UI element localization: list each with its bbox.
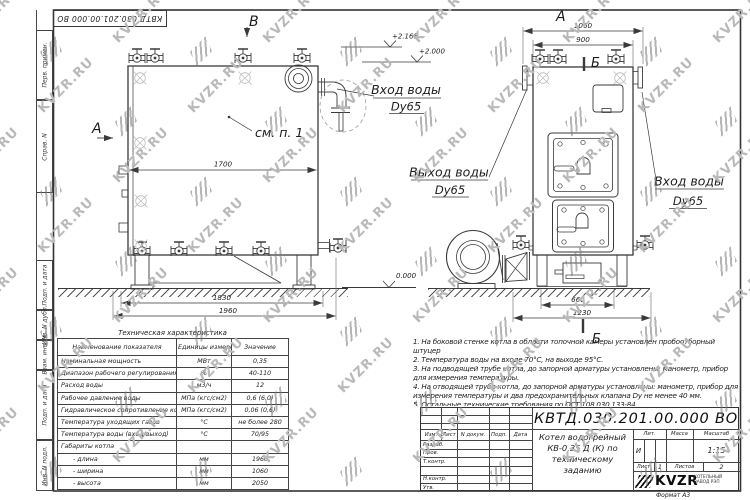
- tech-cell: Диапазон рабочего регулирования: [58, 368, 177, 380]
- product-name-line3: техническому заданию: [532, 454, 633, 476]
- sheet-label: Лист: [633, 462, 654, 471]
- tech-header-cell: Единицы измерения: [177, 339, 232, 356]
- tech-row: Гидравлическое сопротивление котлаМПа (к…: [58, 404, 289, 416]
- tech-cell: мм: [177, 453, 232, 465]
- tech-cell: МПа (кгс/см2): [177, 404, 232, 416]
- view-marks: [97, 27, 584, 333]
- view-title-a: А: [555, 9, 566, 25]
- tech-cell: %: [177, 368, 232, 380]
- front-view-valves: [129, 49, 346, 256]
- note-line: 5. Остальные технические требования по О…: [413, 400, 740, 406]
- dim-1230: 1230: [573, 308, 592, 317]
- outlet-label: Выход воды: [409, 165, 489, 180]
- margin-label: Подп. и дата: [41, 385, 48, 426]
- tech-cell: м3/ч: [177, 380, 232, 392]
- kvzr-logo-icon: [635, 475, 654, 488]
- note-line: 1. На боковой стенке котла в области топ…: [413, 337, 740, 355]
- technical-notes: 1. На боковой стенке котла в области топ…: [413, 337, 740, 406]
- tech-cell: мм: [177, 465, 232, 477]
- dim-1700: 1700: [214, 160, 233, 169]
- margin-box-podp2: Подп. и дата: [36, 370, 53, 440]
- tech-cell: [177, 441, 232, 453]
- dim-660: 660: [571, 295, 585, 304]
- product-name-line2: КВ-0,35 Д (К) по: [532, 443, 633, 454]
- tech-cell: не более 280: [232, 416, 289, 428]
- sig-tkontr: Т.контр.: [421, 457, 459, 466]
- scale-value: 1:15: [693, 439, 740, 462]
- inlet-mid-dn: Dy65: [391, 100, 421, 114]
- tech-cell: [232, 441, 289, 453]
- inlet-right-label: Вход воды: [654, 174, 724, 189]
- margin-box-vzam: Взам. инв. N: [36, 340, 53, 370]
- tech-cell: Рабочее давление воды: [58, 392, 177, 404]
- tech-header-cell: Значение: [232, 339, 289, 356]
- top-stamp-number: КВТД.030.201.00.000 ВО: [57, 14, 162, 23]
- sheets-num: 2: [703, 462, 740, 471]
- see-note-label: см. п. 1: [255, 125, 303, 140]
- tech-cell: МПа (кгс/см2): [177, 392, 232, 404]
- tech-row: - высотамм2050: [58, 477, 289, 489]
- blower-fan: [447, 231, 530, 289]
- drawing-sheet: 1700 1830 1960 1060 900 660 1230 А В А Б…: [0, 0, 750, 500]
- tech-cell: 1060: [232, 465, 289, 477]
- side-view-valves: [513, 50, 653, 250]
- tech-characteristics: Техническая характеристика Наименование …: [57, 329, 288, 490]
- tech-cell: °С: [177, 416, 232, 428]
- sheets-label: Листов: [666, 462, 703, 471]
- outlet-dn: Dy65: [435, 183, 465, 197]
- tech-cell: °С: [177, 429, 232, 441]
- view-letter-a: А: [91, 121, 102, 137]
- tech-table: Наименование показателяЕдиницы измерения…: [57, 338, 289, 490]
- elev-zero: 0.000: [396, 272, 417, 280]
- tech-table-title: Техническая характеристика: [57, 329, 288, 337]
- title-block: КВТД.030.201.00.000 ВО Изм. Лист N докум…: [420, 407, 739, 491]
- mass-label: Масса: [666, 429, 693, 439]
- elev-top: +2.165: [392, 33, 418, 41]
- col-data: Дата: [509, 430, 532, 440]
- inlet-right-dn: Dy65: [673, 194, 703, 208]
- tech-cell: Габариты котла: [58, 441, 177, 453]
- margin-box-inv-podl: Инв. N подл.: [36, 440, 53, 491]
- dim-900: 900: [576, 35, 590, 44]
- margin-box-perv: Перв. примен.: [36, 30, 53, 100]
- sheet-num: 1: [654, 462, 666, 471]
- lit-value: И: [633, 439, 644, 462]
- tech-cell: 2050: [232, 477, 289, 489]
- col-list: Лист: [441, 430, 457, 440]
- tech-cell: 0,35: [232, 356, 289, 368]
- col-podp: Подп.: [489, 430, 509, 440]
- dimensions: [113, 27, 651, 322]
- tech-row: Номинальная мощностьМВт0,35: [58, 356, 289, 368]
- margin-label: Взам. инв. N: [41, 336, 48, 375]
- margin-box-sprav: Справ. N: [36, 100, 53, 193]
- tech-row: - длинамм1960: [58, 453, 289, 465]
- col-ndokum: N докум.: [457, 430, 489, 440]
- side-view: [523, 66, 643, 287]
- top-stamp: КВТД.030.201.00.000 ВО: [53, 10, 167, 27]
- tech-row: Температура воды (вход/выход)°С70/95: [58, 429, 289, 441]
- margin-box-podp1: Подп. и дата: [36, 260, 53, 310]
- tech-cell: Расход воды: [58, 380, 177, 392]
- kvzr-logo-subtext: КОТЕЛЬНЫЙ ЗАВОД РЭП: [694, 476, 722, 486]
- dim-1960: 1960: [219, 306, 238, 315]
- kvzr-logo-text: KVZR: [655, 473, 698, 489]
- tech-cell: Температура уходящих газов: [58, 416, 177, 428]
- tech-row: Расход водым3/ч12: [58, 380, 289, 392]
- tech-row: Рабочее давление водыМПа (кгс/см2)0,6 (6…: [58, 392, 289, 404]
- sig-utv: Утв.: [421, 483, 459, 492]
- tech-cell: 1960: [232, 453, 289, 465]
- col-izm: Изм.: [421, 430, 441, 440]
- margin-label: Справ. N: [41, 133, 48, 160]
- note-line: 4. На отводящей трубе котла, до запорной…: [413, 382, 740, 400]
- section-letter-top: Б: [591, 56, 600, 71]
- tech-cell: - высота: [58, 477, 177, 489]
- dim-1060: 1060: [574, 21, 593, 30]
- product-name: Котел водогрейный КВ-0,35 Д (К) по техни…: [532, 432, 633, 476]
- tech-cell: 70/95: [232, 429, 289, 441]
- tech-cell: 0,6 (6,0): [232, 392, 289, 404]
- view-letter-b: В: [249, 14, 259, 30]
- tech-header-cell: Наименование показателя: [58, 339, 177, 356]
- tech-cell: 0,06 (0,6): [232, 404, 289, 416]
- kvzr-sub-line2: ЗАВОД РЭП: [694, 481, 722, 486]
- tech-row: Диапазон рабочего регулирования%40-110: [58, 368, 289, 380]
- dim-1830: 1830: [213, 293, 232, 302]
- tech-cell: Температура воды (вход/выход): [58, 429, 177, 441]
- front-view: [119, 65, 346, 289]
- tech-cell: Гидравлическое сопротивление котла: [58, 404, 177, 416]
- product-name-line1: Котел водогрейный: [532, 432, 633, 443]
- tech-cell: Номинальная мощность: [58, 356, 177, 368]
- inlet-mid-label: Вход воды: [371, 82, 441, 97]
- doc-number: КВТД.030.201.00.000 ВО: [532, 408, 740, 429]
- margin-label: Перв. примен.: [41, 42, 48, 87]
- margin-label: Подп. и дата: [41, 265, 48, 306]
- inlet-elbow: [318, 78, 366, 132]
- tech-cell: - длина: [58, 453, 177, 465]
- tech-cell: мм: [177, 477, 232, 489]
- format-label: Формат А3: [656, 492, 690, 499]
- tech-row: Температура уходящих газов°Сне более 280: [58, 416, 289, 428]
- leaders: [228, 89, 724, 209]
- tech-cell: 40-110: [232, 368, 289, 380]
- tech-row: Габариты котла: [58, 441, 289, 453]
- note-line: 3. На подводящей трубе котла, до запорно…: [413, 364, 740, 382]
- tech-row: - ширинамм1060: [58, 465, 289, 477]
- tech-cell: 12: [232, 380, 289, 392]
- note-line: 2. Температура воды на входе 70°С, на вы…: [413, 355, 740, 364]
- margin-label: Инв. N подл.: [41, 446, 48, 486]
- scale-label: Масштаб: [693, 429, 740, 439]
- lit-label: Лит.: [633, 429, 666, 439]
- tech-cell: МВт: [177, 356, 232, 368]
- mass-value: [666, 439, 693, 462]
- sig-razrab: Разраб.: [421, 440, 459, 449]
- elev-mid: +2.000: [419, 48, 445, 56]
- tech-cell: - ширина: [58, 465, 177, 477]
